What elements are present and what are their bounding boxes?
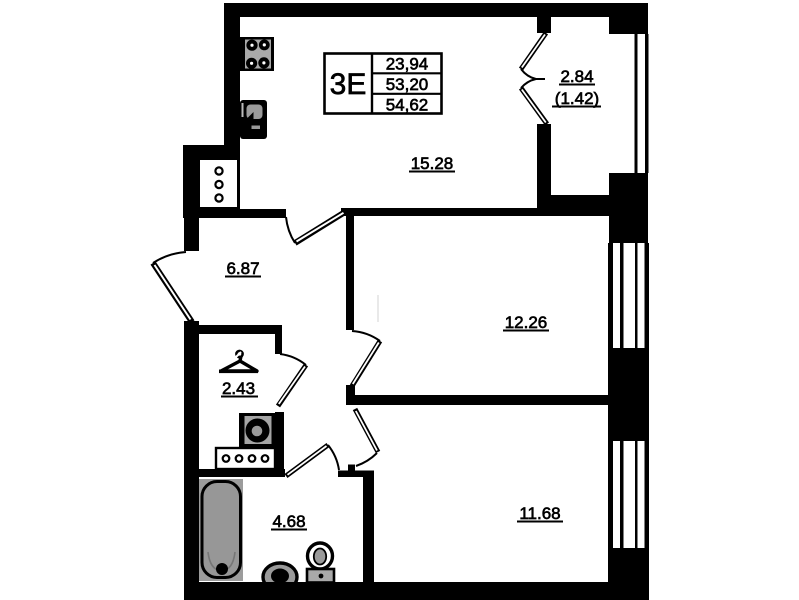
- svg-text:53,20: 53,20: [386, 75, 429, 94]
- svg-text:2.84: 2.84: [560, 67, 593, 86]
- svg-text:54,62: 54,62: [386, 96, 429, 115]
- svg-text:15.28: 15.28: [411, 154, 454, 173]
- svg-text:12.26: 12.26: [505, 313, 548, 332]
- svg-text:6.87: 6.87: [226, 259, 259, 278]
- svg-text:23,94: 23,94: [386, 55, 429, 74]
- svg-text:3E: 3E: [330, 68, 367, 101]
- svg-text:2.43: 2.43: [222, 379, 255, 398]
- svg-text:(1.42): (1.42): [555, 89, 599, 108]
- svg-text:11.68: 11.68: [519, 504, 560, 523]
- svg-text:4.68: 4.68: [272, 512, 305, 531]
